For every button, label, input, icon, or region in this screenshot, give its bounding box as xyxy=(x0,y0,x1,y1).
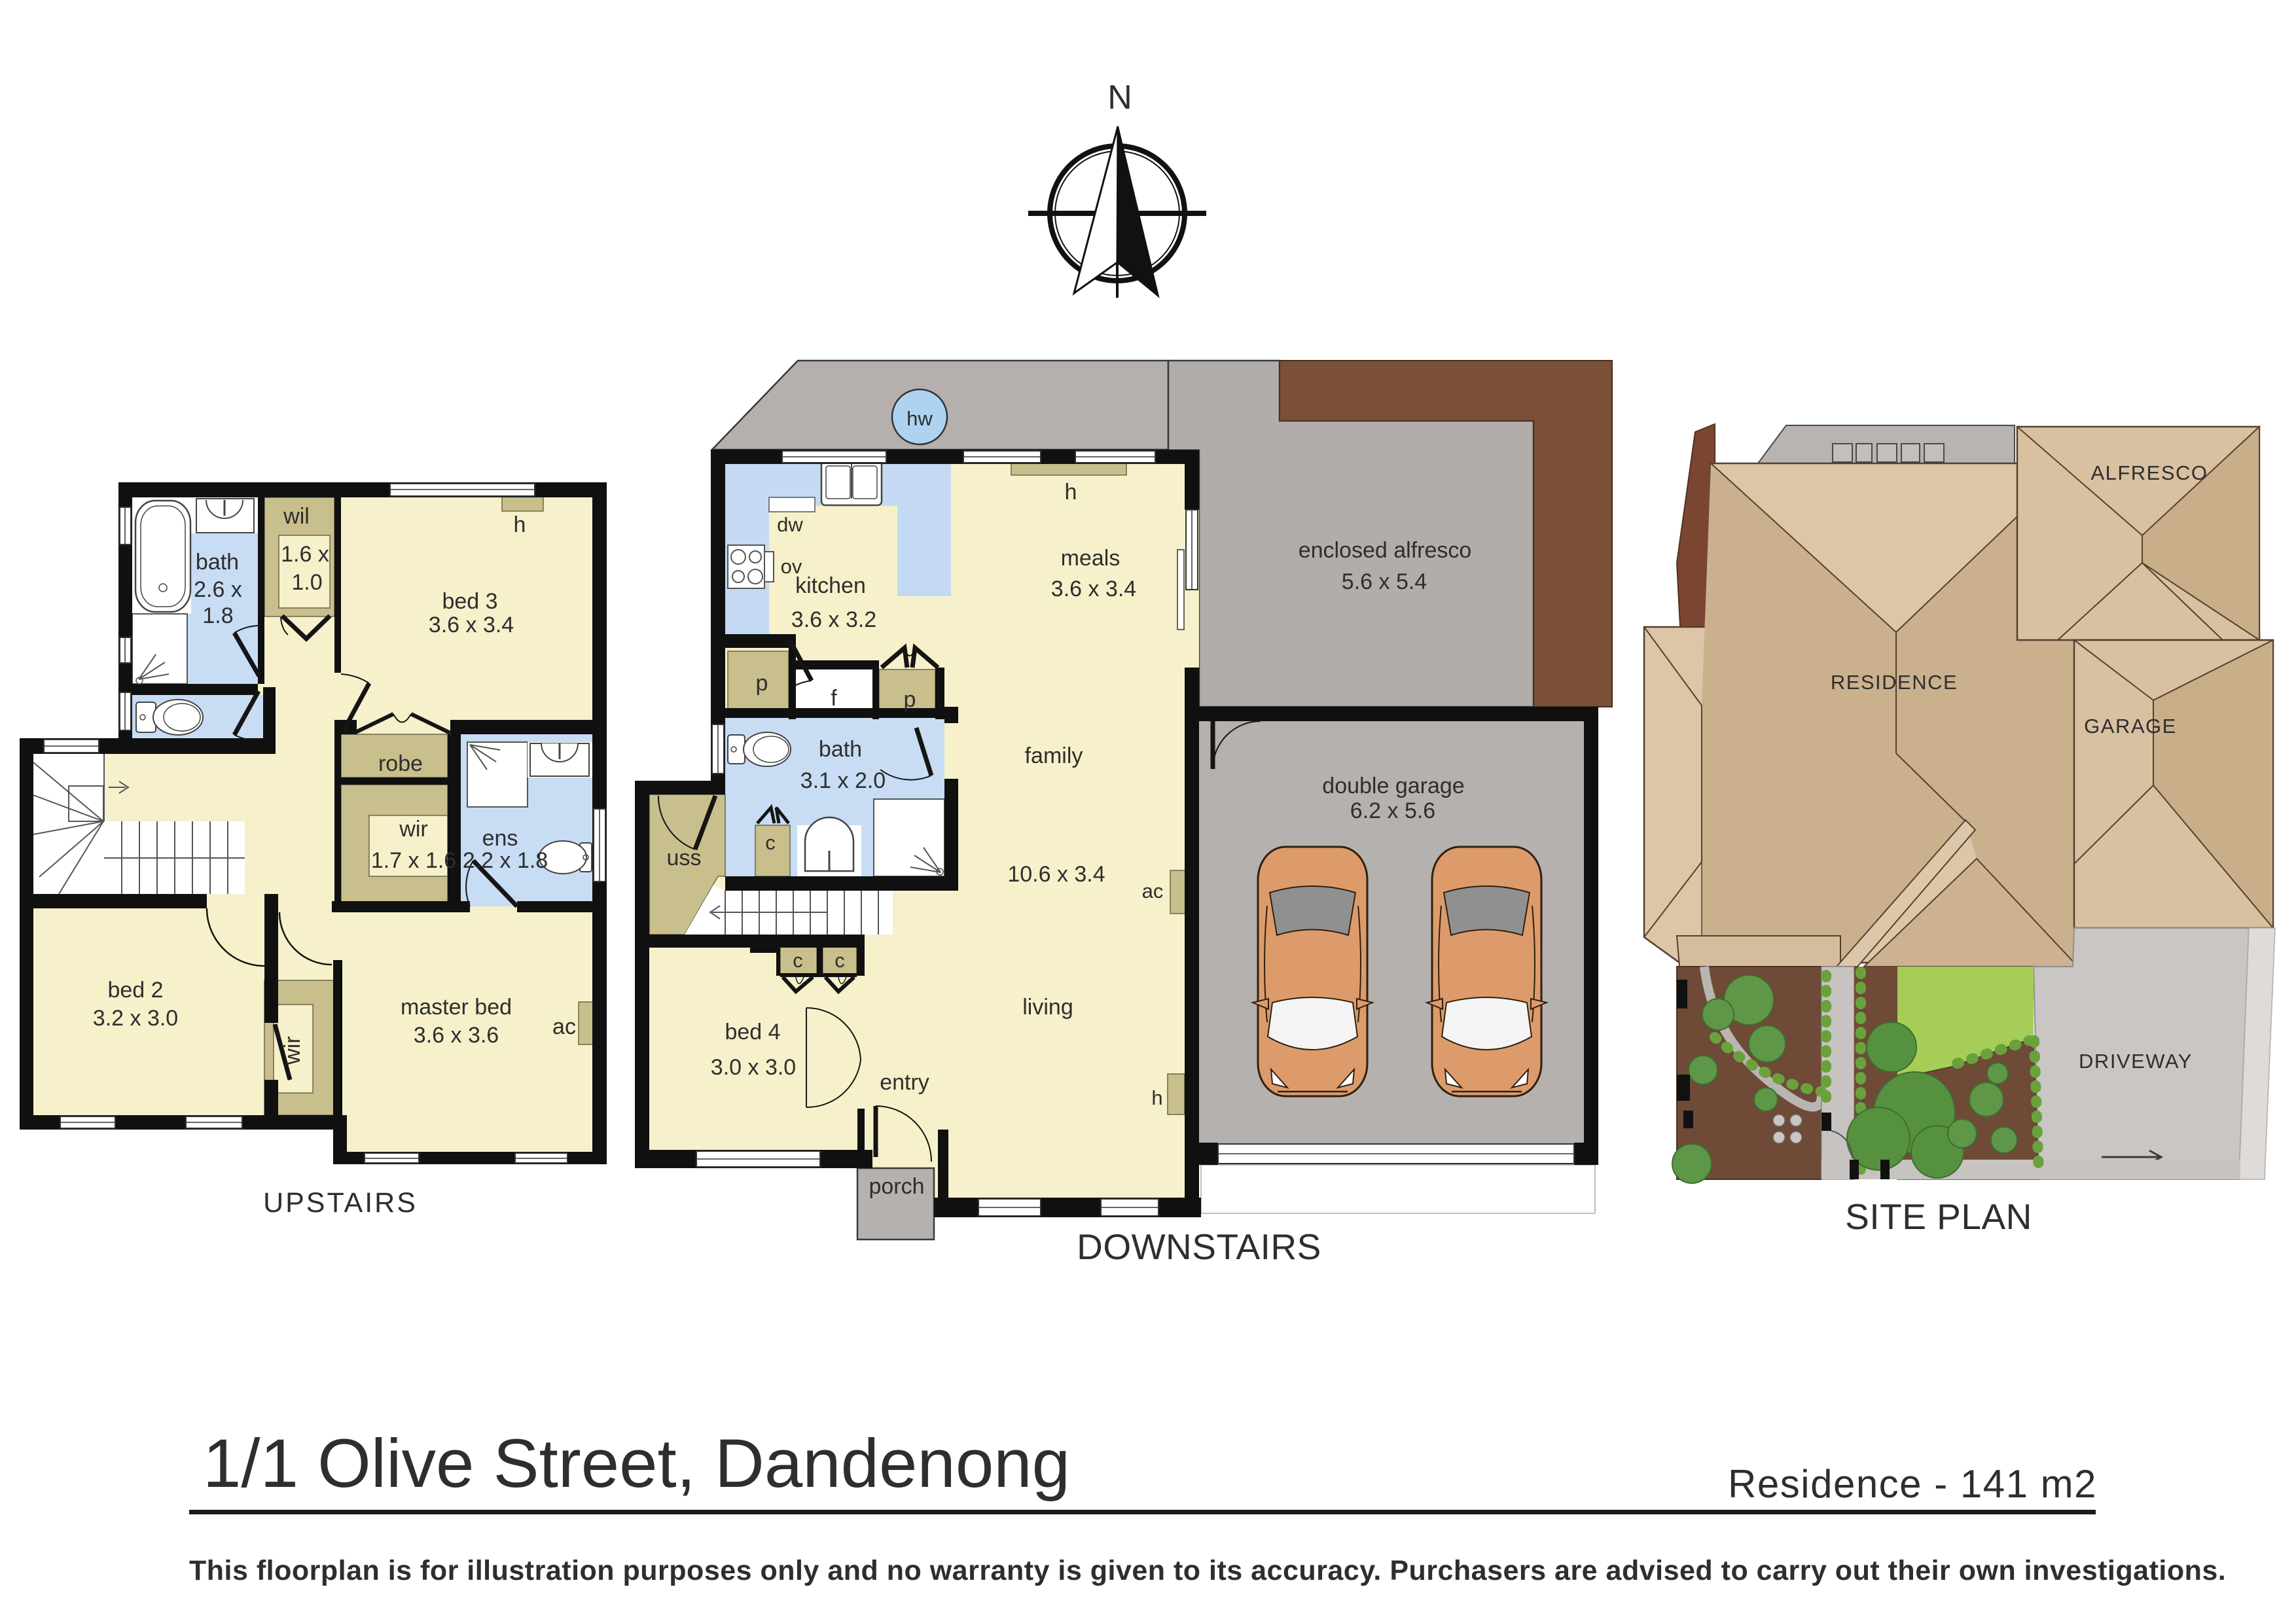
svg-text:ac: ac xyxy=(552,1014,576,1039)
svg-text:DOWNSTAIRS: DOWNSTAIRS xyxy=(1077,1226,1321,1267)
svg-text:1.8: 1.8 xyxy=(202,603,233,628)
svg-text:h: h xyxy=(514,512,526,537)
svg-text:N: N xyxy=(1107,79,1132,116)
svg-text:3.6 x 3.4: 3.6 x 3.4 xyxy=(1051,577,1136,601)
svg-text:uss: uss xyxy=(667,846,702,870)
svg-text:c: c xyxy=(765,831,776,854)
svg-text:bed 3: bed 3 xyxy=(442,589,497,614)
svg-text:2.2 x 1.8: 2.2 x 1.8 xyxy=(463,848,548,873)
svg-text:hw: hw xyxy=(906,407,933,430)
svg-text:1.7 x 1.6: 1.7 x 1.6 xyxy=(371,848,456,873)
svg-text:wil: wil xyxy=(283,504,310,529)
svg-text:h: h xyxy=(1065,480,1077,505)
svg-text:bed 2: bed 2 xyxy=(107,978,163,1003)
svg-text:6.2 x 5.6: 6.2 x 5.6 xyxy=(1350,798,1435,823)
svg-text:living: living xyxy=(1022,995,1073,1020)
svg-text:2.6 x: 2.6 x xyxy=(194,577,242,602)
svg-text:master bed: master bed xyxy=(401,995,512,1020)
svg-text:DRIVEWAY: DRIVEWAY xyxy=(2079,1050,2193,1073)
svg-text:This floorplan is for illustra: This floorplan is for illustration purpo… xyxy=(189,1555,2226,1586)
svg-text:1/1 Olive Street, Dandenong: 1/1 Olive Street, Dandenong xyxy=(203,1425,1070,1502)
svg-text:ALFRESCO: ALFRESCO xyxy=(2090,461,2208,484)
svg-text:meals: meals xyxy=(1061,546,1121,571)
svg-text:family: family xyxy=(1025,743,1083,768)
svg-text:UPSTAIRS: UPSTAIRS xyxy=(263,1187,418,1219)
svg-text:10.6 x 3.4: 10.6 x 3.4 xyxy=(1007,862,1105,887)
svg-text:p: p xyxy=(904,687,916,712)
svg-text:double garage: double garage xyxy=(1322,774,1464,798)
svg-text:h: h xyxy=(1151,1086,1162,1109)
svg-text:bath: bath xyxy=(196,550,239,575)
svg-text:wir: wir xyxy=(280,1036,305,1065)
svg-text:porch: porch xyxy=(869,1174,924,1199)
svg-text:wir: wir xyxy=(399,817,427,842)
svg-text:dw: dw xyxy=(777,513,803,536)
svg-text:3.2 x 3.0: 3.2 x 3.0 xyxy=(93,1006,178,1031)
svg-text:Residence - 141 m2: Residence - 141 m2 xyxy=(1728,1462,2097,1506)
svg-text:3.6 x 3.2: 3.6 x 3.2 xyxy=(791,607,876,632)
svg-text:ac: ac xyxy=(1142,880,1164,902)
svg-text:robe: robe xyxy=(378,751,423,776)
svg-text:kitchen: kitchen xyxy=(795,573,866,598)
svg-text:bed 4: bed 4 xyxy=(725,1020,780,1044)
svg-text:enclosed alfresco: enclosed alfresco xyxy=(1299,538,1472,563)
svg-text:p: p xyxy=(756,671,768,696)
svg-text:GARAGE: GARAGE xyxy=(2084,715,2177,738)
svg-text:entry: entry xyxy=(880,1070,929,1095)
svg-text:3.6 x 3.4: 3.6 x 3.4 xyxy=(429,613,514,637)
svg-text:f: f xyxy=(831,686,837,711)
svg-text:3.1 x 2.0: 3.1 x 2.0 xyxy=(800,768,886,793)
svg-text:RESIDENCE: RESIDENCE xyxy=(1831,671,1958,694)
svg-text:bath: bath xyxy=(819,737,862,762)
svg-text:c: c xyxy=(793,949,803,972)
svg-text:1.0: 1.0 xyxy=(291,570,322,595)
svg-text:5.6 x 5.4: 5.6 x 5.4 xyxy=(1342,569,1427,594)
svg-text:SITE PLAN: SITE PLAN xyxy=(1845,1196,2032,1237)
svg-text:3.6 x 3.6: 3.6 x 3.6 xyxy=(414,1023,499,1048)
svg-text:c: c xyxy=(834,949,845,972)
svg-text:ens: ens xyxy=(482,826,518,851)
svg-text:1.6 x: 1.6 x xyxy=(281,542,329,567)
svg-text:3.0 x 3.0: 3.0 x 3.0 xyxy=(711,1055,796,1080)
